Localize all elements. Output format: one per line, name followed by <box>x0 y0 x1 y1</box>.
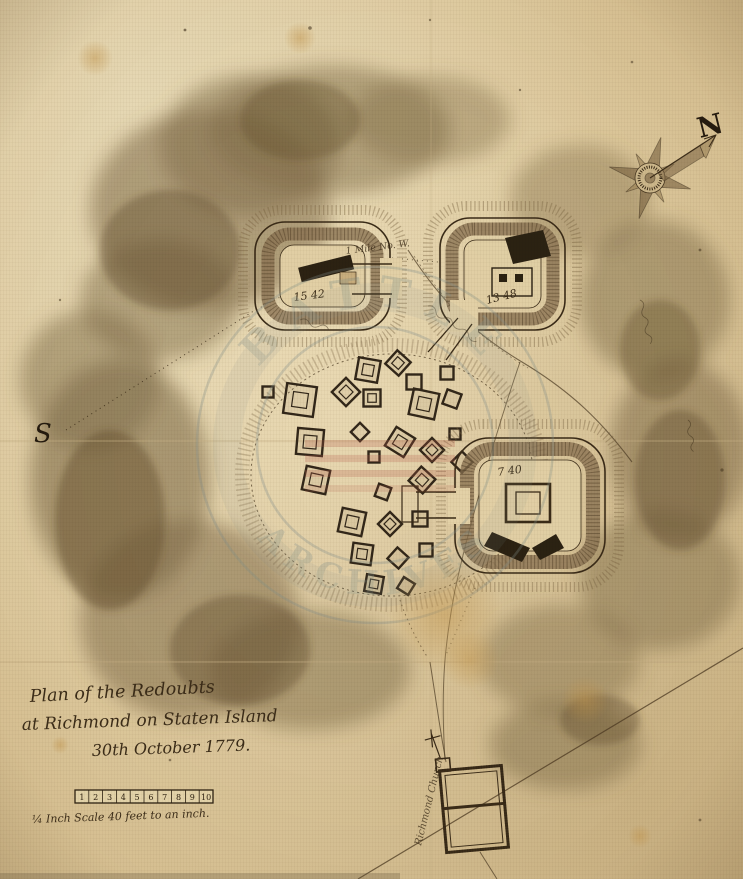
map-sheet: 15 42 13 48 7 40 <box>0 0 743 879</box>
sheet-edge <box>0 873 400 879</box>
vignette <box>0 0 743 879</box>
map-drawing: 15 42 13 48 7 40 <box>0 0 743 879</box>
